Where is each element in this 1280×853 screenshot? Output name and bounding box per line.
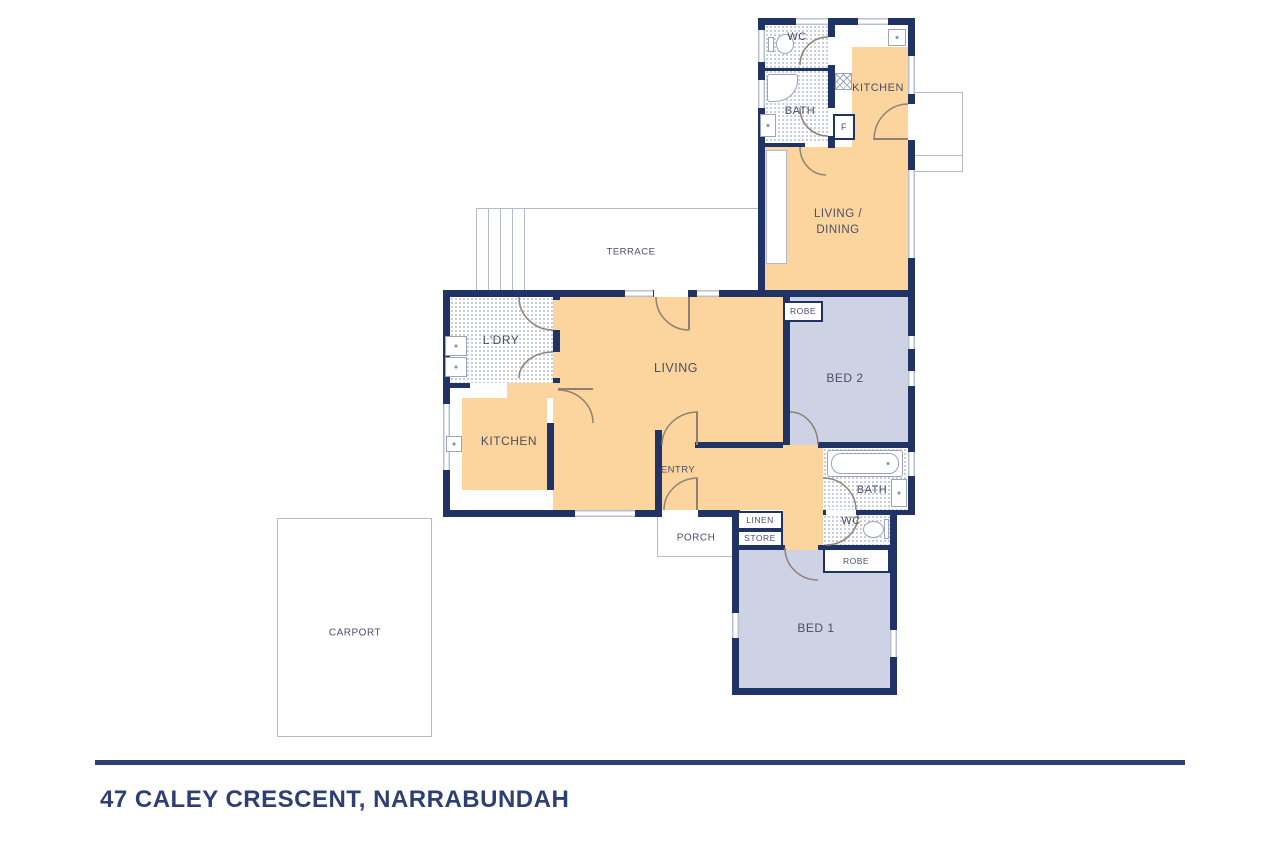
room-label-kitchen-main: KITCHEN xyxy=(481,434,537,448)
hall-floor xyxy=(783,445,823,550)
window-opening xyxy=(908,170,915,258)
toilet-bowl xyxy=(863,521,884,538)
window-opening xyxy=(625,290,653,297)
door-arc-bath-main xyxy=(823,478,856,510)
door-leaf xyxy=(688,297,690,330)
door-arc-bed1 xyxy=(785,548,818,580)
living-dining-recess xyxy=(766,150,787,264)
room-label-bed2: BED 2 xyxy=(826,371,863,385)
window-opening xyxy=(575,510,635,517)
property-address: 47 CALEY CRESCENT, NARRABUNDAH xyxy=(100,786,569,814)
laundry-trough xyxy=(445,357,467,377)
room-label-living-dining: LIVING / DINING xyxy=(814,206,862,238)
laundry-trough xyxy=(445,336,467,356)
terrace-step-line xyxy=(488,209,489,292)
wall-segment xyxy=(553,378,560,383)
room-label-living: LIVING xyxy=(654,361,698,375)
window-opening xyxy=(908,371,915,386)
wall-segment xyxy=(443,383,470,388)
robe-bed1-label: ROBE xyxy=(843,556,869,566)
kitchen-sink xyxy=(888,29,906,46)
door-opening xyxy=(662,510,698,517)
door-arc-entry-living xyxy=(662,412,698,445)
window-opening xyxy=(890,630,897,657)
wall-segment xyxy=(818,442,908,448)
door-arc-kitchen-main xyxy=(558,390,593,423)
door-arc-laundry-top xyxy=(519,297,553,330)
door-leaf xyxy=(874,138,908,140)
terrace-step-line xyxy=(500,209,501,292)
fridge-label: F xyxy=(841,122,847,132)
room-label-bed1: BED 1 xyxy=(797,621,834,635)
wall-segment xyxy=(758,18,915,25)
wall-segment xyxy=(765,143,805,147)
window-opening xyxy=(796,18,828,25)
window-opening xyxy=(758,80,765,108)
wall-segment xyxy=(890,515,897,695)
door-arc-bed2 xyxy=(790,412,818,445)
door-arc-laundry-bottom xyxy=(519,352,553,378)
linen-label: LINEN xyxy=(746,515,774,525)
door-opening xyxy=(828,37,835,65)
living-dining-line2: DINING xyxy=(816,224,859,236)
room-label-bath-main: BATH xyxy=(857,484,888,496)
deck-area xyxy=(913,92,963,172)
room-label-entry: ENTRY xyxy=(661,465,696,476)
wall-segment xyxy=(695,442,783,448)
carport-label: CARPORT xyxy=(329,628,381,639)
terrace-step-line xyxy=(512,209,513,292)
room-label-bath-top: BATH xyxy=(785,105,816,117)
room-label-laundry: L'DRY xyxy=(483,333,520,347)
basin xyxy=(891,479,907,507)
terrace-label: TERRACE xyxy=(607,247,656,258)
toilet-cistern xyxy=(884,519,889,539)
door-leaf xyxy=(696,412,698,445)
window-opening xyxy=(697,290,719,297)
window-opening xyxy=(858,18,888,25)
porch-label: PORCH xyxy=(677,533,716,544)
cooktop xyxy=(835,73,852,90)
kitchen-main-floor-notch xyxy=(507,383,558,398)
wall-segment xyxy=(908,290,915,448)
door-arc-living-terrace xyxy=(656,297,689,330)
door-leaf xyxy=(696,478,698,510)
window-opening xyxy=(908,336,915,349)
basin xyxy=(760,114,776,137)
bathtub-inner xyxy=(831,453,899,474)
window-opening xyxy=(732,613,739,638)
terrace-step-line xyxy=(524,209,525,292)
door-opening xyxy=(908,104,915,140)
door-leaf xyxy=(558,388,593,390)
robe-bed2-label: ROBE xyxy=(790,306,816,316)
window-opening xyxy=(758,30,765,62)
wall-segment xyxy=(553,290,560,300)
room-label-wc-main: WC xyxy=(841,515,860,527)
store-label: STORE xyxy=(744,533,776,543)
toilet-cistern xyxy=(768,37,774,52)
deck-step-line xyxy=(914,155,962,156)
door-opening xyxy=(654,290,688,297)
door-arc-kitchen-deck xyxy=(874,104,908,140)
window-opening xyxy=(908,452,915,476)
room-label-kitchen-top: KITCHEN xyxy=(852,82,904,94)
room-label-wc-top: WC xyxy=(787,31,806,43)
footer-divider xyxy=(95,760,1185,765)
kitchen-sink xyxy=(446,436,462,452)
wall-segment xyxy=(765,68,828,71)
door-arc-entry-porch xyxy=(664,478,698,510)
living-dining-line1: LIVING / xyxy=(814,208,862,220)
window-opening xyxy=(908,56,915,94)
floorplan: WC BATH KITCHEN F LIVING / DINING TERRAC… xyxy=(0,0,1280,853)
wall-segment xyxy=(547,423,554,490)
wall-segment xyxy=(732,688,897,695)
door-arc-bath-living xyxy=(800,147,826,175)
wall-segment xyxy=(553,330,560,352)
